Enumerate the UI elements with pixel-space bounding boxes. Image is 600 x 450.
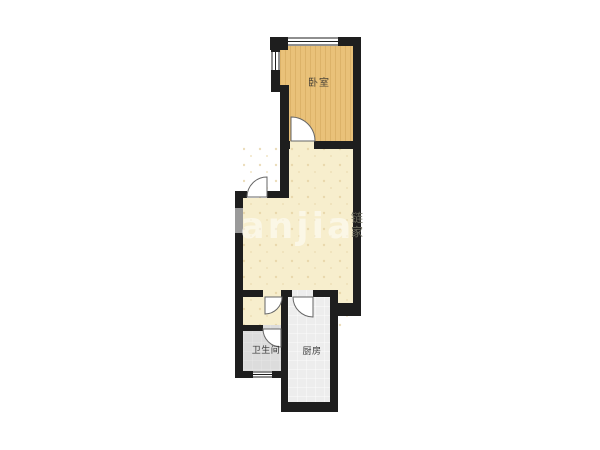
kitchen-label: 厨房 bbox=[302, 345, 321, 357]
window-bathroom-bottom bbox=[253, 371, 272, 378]
window-bedroom-left bbox=[271, 52, 280, 70]
watermark-seal-char-1: 链 bbox=[351, 210, 363, 225]
floorplan-image: 卧室 卫生间 厨房 lianjia 链 家 bbox=[0, 0, 600, 450]
bedroom-label: 卧室 bbox=[308, 76, 330, 89]
window-bedroom-top bbox=[288, 37, 338, 46]
watermark-text: lianjia bbox=[210, 206, 355, 247]
bathroom-label: 卫生间 bbox=[252, 344, 281, 356]
floorplan-svg: 卧室 卫生间 厨房 lianjia 链 家 bbox=[0, 0, 600, 450]
watermark-seal-char-2: 家 bbox=[351, 224, 363, 239]
